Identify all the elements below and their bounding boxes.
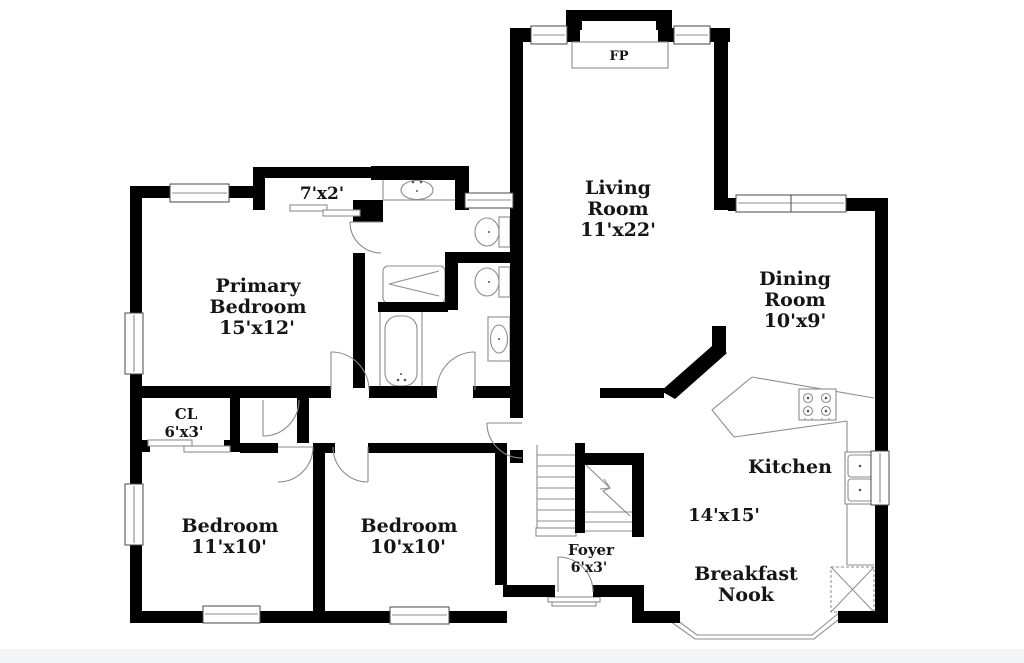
label-foyer-1: Foyer <box>568 541 615 559</box>
stove-icon <box>799 389 836 420</box>
label-living-1: Living <box>585 177 651 199</box>
door-arc <box>350 222 381 253</box>
label-primary-3: 15'x12' <box>219 317 295 339</box>
bathtub-icon <box>380 310 422 392</box>
label-kitchen: Kitchen <box>748 456 832 478</box>
window <box>465 193 513 208</box>
label-living-2: Room <box>587 198 648 220</box>
small-sink-icon <box>488 317 510 361</box>
label-breakfast-1: Breakfast <box>694 563 798 585</box>
window <box>125 313 143 374</box>
door-arc <box>333 447 368 482</box>
door-arc <box>437 352 475 390</box>
label-bedroom-middle-2: 10'x10' <box>370 536 446 558</box>
label-bedroom-left-1: Bedroom <box>182 515 279 537</box>
window <box>736 195 846 212</box>
label-cl-2: 6'x3' <box>164 423 203 441</box>
pantry-x-box <box>831 567 874 612</box>
toilet-icon <box>475 217 510 247</box>
label-dining-1: Dining <box>759 268 831 290</box>
label-dining-2: Room <box>764 289 825 311</box>
front-stoop <box>548 597 600 606</box>
shower-icon <box>383 266 445 303</box>
sliding-closet-doors <box>148 440 230 452</box>
window <box>170 184 229 202</box>
fireplace-bump <box>566 10 672 30</box>
toilet-icon <box>475 267 510 297</box>
window <box>125 484 143 545</box>
vanity-sink-icon <box>383 179 459 200</box>
label-cl-1: CL <box>175 405 198 423</box>
label-kitchen-dims: 14'x15' <box>688 505 760 526</box>
label-breakfast-2: Nook <box>718 584 775 606</box>
window <box>531 26 567 44</box>
label-primary-1: Primary <box>216 275 302 297</box>
window <box>203 606 260 623</box>
floorplan-svg: FP Living Room 11'x22' Dining Room 10'x9… <box>0 0 1024 663</box>
window <box>390 607 449 624</box>
sliding-closet-doors <box>290 205 360 216</box>
label-bedroom-middle-1: Bedroom <box>361 515 458 537</box>
label-primary-2: Bedroom <box>210 296 307 318</box>
frame-strip <box>0 649 1024 663</box>
label-dining-3: 10'x9' <box>764 310 827 332</box>
door-arc <box>263 400 299 436</box>
window <box>871 451 889 505</box>
label-foyer-2: 6'x3' <box>571 560 607 576</box>
bay-window <box>663 612 843 639</box>
door-arc <box>278 447 313 482</box>
window <box>674 26 710 44</box>
label-living-3: 11'x22' <box>580 219 656 241</box>
floorplan-image: FP Living Room 11'x22' Dining Room 10'x9… <box>0 0 1024 663</box>
label-fireplace: FP <box>609 49 628 64</box>
label-bedroom-left-2: 11'x10' <box>191 536 267 558</box>
angled-wall <box>661 346 727 399</box>
label-hall-closet: 7'x2' <box>300 184 344 204</box>
